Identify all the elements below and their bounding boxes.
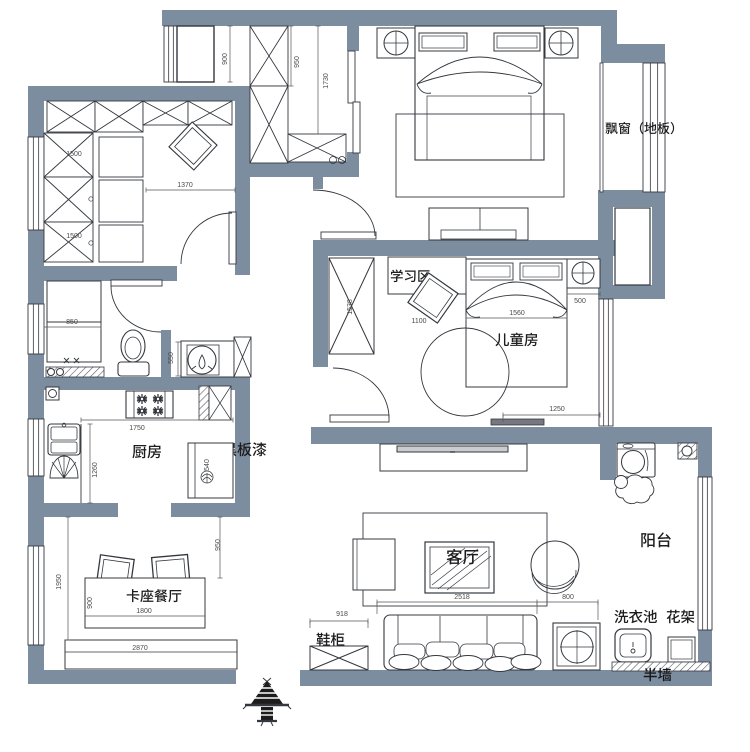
svg-text:1538: 1538 [347, 299, 354, 315]
svg-text:850: 850 [66, 319, 78, 326]
svg-text:1950: 1950 [56, 574, 63, 590]
svg-text:1800: 1800 [136, 608, 152, 615]
svg-text:550: 550 [168, 352, 175, 364]
svg-text:1560: 1560 [509, 310, 525, 317]
svg-text:1250: 1250 [549, 406, 565, 413]
svg-text:1750: 1750 [129, 425, 145, 432]
svg-text:950: 950 [215, 539, 222, 551]
svg-text:500: 500 [574, 298, 586, 305]
svg-text:1500: 1500 [66, 233, 82, 240]
svg-text:1260: 1260 [92, 462, 99, 478]
svg-text:800: 800 [562, 594, 574, 601]
svg-text:1100: 1100 [411, 318, 426, 325]
svg-text:1730: 1730 [323, 73, 330, 89]
svg-text:540: 540 [204, 459, 211, 471]
svg-text:918: 918 [336, 611, 348, 618]
svg-text:1370: 1370 [177, 182, 193, 189]
svg-text:900: 900 [222, 53, 229, 65]
svg-text:900: 900 [87, 597, 94, 609]
svg-text:2518: 2518 [454, 594, 470, 601]
svg-text:2870: 2870 [132, 645, 148, 652]
svg-text:1500: 1500 [66, 151, 82, 158]
svg-text:950: 950 [294, 56, 301, 68]
